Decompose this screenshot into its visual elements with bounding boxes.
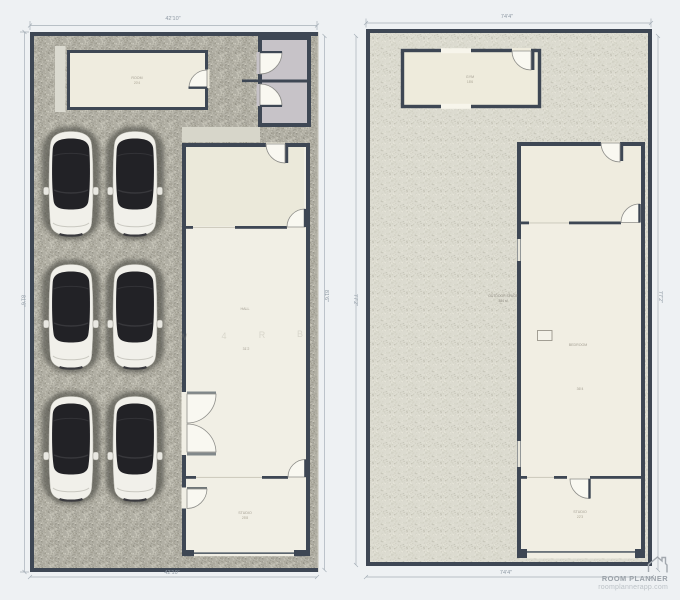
svg-text:384 sf: 384 sf	[498, 299, 507, 303]
svg-text:roomplannerapp.com: roomplannerapp.com	[598, 584, 668, 591]
svg-text:25'8: 25'8	[242, 516, 248, 520]
svg-text:77'2": 77'2"	[352, 294, 358, 306]
svg-text:81'6": 81'6"	[323, 290, 329, 302]
svg-text:B: B	[297, 329, 303, 339]
svg-text:74'4": 74'4"	[500, 570, 512, 576]
svg-text:BEDROOM: BEDROOM	[569, 343, 588, 347]
svg-text:42'10": 42'10"	[165, 16, 180, 22]
svg-text:4: 4	[221, 331, 226, 341]
svg-text:74'4": 74'4"	[501, 14, 513, 20]
svg-text:ROOM PLANNER: ROOM PLANNER	[602, 574, 668, 583]
svg-text:STUDIO: STUDIO	[238, 511, 252, 515]
svg-text:31'2: 31'2	[243, 347, 250, 351]
svg-text:OUTDOOR SPACE: OUTDOOR SPACE	[488, 294, 518, 298]
svg-text:36'4: 36'4	[577, 387, 584, 391]
svg-text:22'3: 22'3	[577, 515, 583, 519]
svg-text:HALL: HALL	[241, 307, 250, 311]
svg-text:81'6": 81'6"	[20, 295, 26, 307]
svg-text:ROOM: ROOM	[131, 76, 142, 80]
svg-text:W: W	[179, 332, 188, 342]
svg-text:STUDIO: STUDIO	[573, 510, 587, 514]
svg-text:20'4: 20'4	[134, 81, 140, 85]
svg-text:18'6: 18'6	[467, 80, 473, 84]
svg-text:R: R	[259, 330, 266, 340]
svg-text:42'10": 42'10"	[164, 570, 179, 576]
svg-text:GYM: GYM	[466, 75, 474, 79]
svg-text:77'2": 77'2"	[657, 291, 663, 303]
